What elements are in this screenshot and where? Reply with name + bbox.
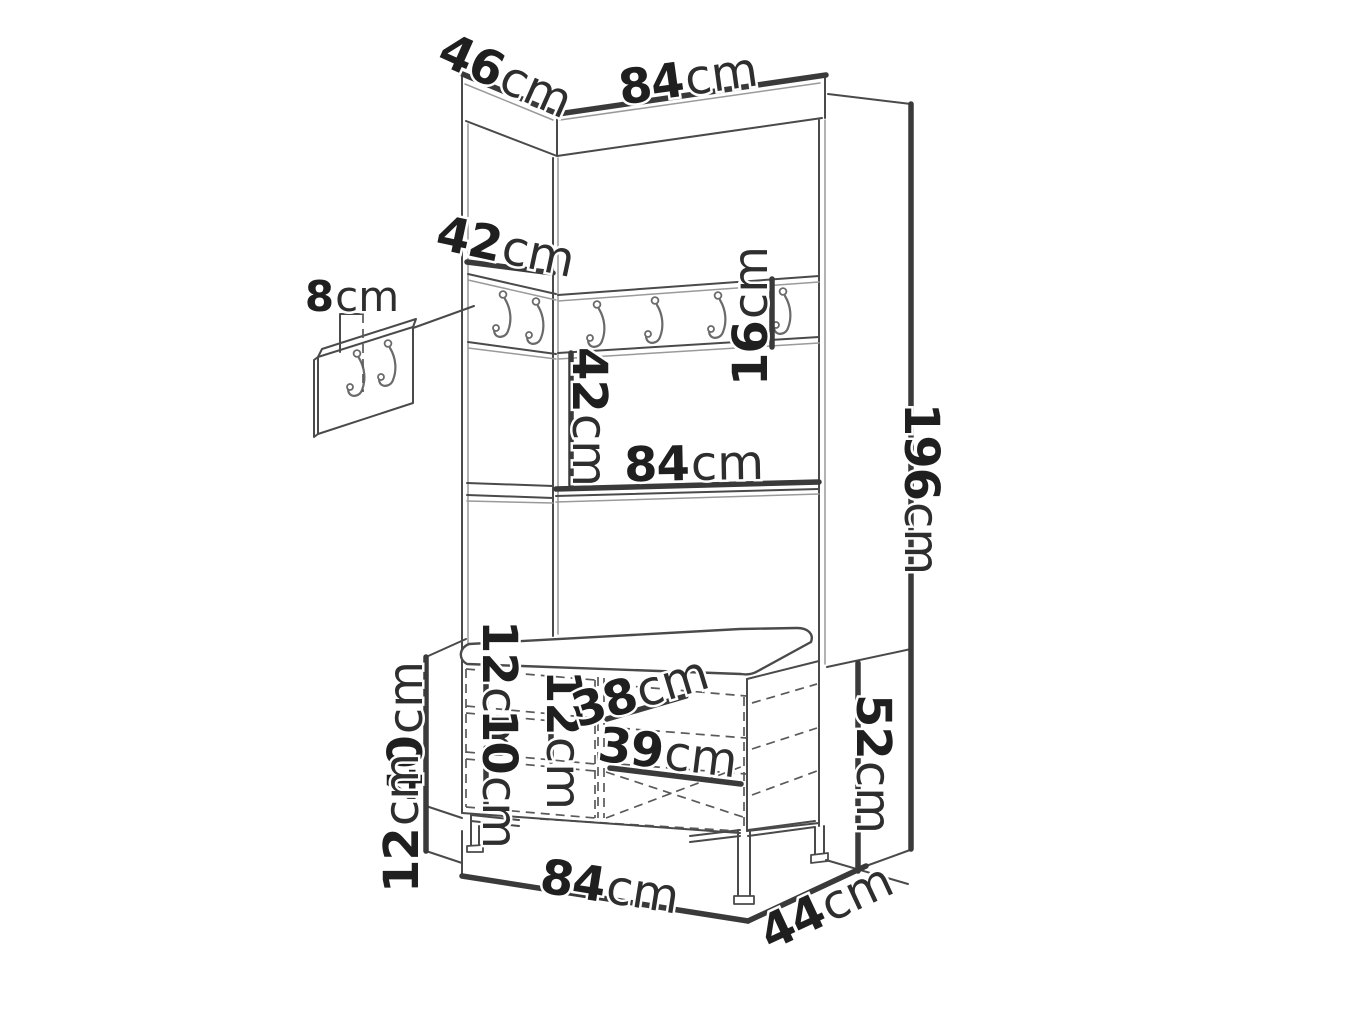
label-bench-low-gap: 10cm <box>471 709 527 849</box>
detail-hook-panel <box>314 306 474 437</box>
furniture-dimension-diagram: 46cm 84cm 42cm 16cm 8cm 42cm 84cm 196cm … <box>0 0 1357 1018</box>
coat-hook-icon <box>493 291 510 337</box>
coat-hook-icon <box>526 298 543 344</box>
label-top-width: 84cm <box>615 42 761 117</box>
label-rail-height: 16cm <box>723 246 779 386</box>
label-total-height: 196cm <box>893 403 949 575</box>
label-bench-depth-lower: 39cm <box>595 717 741 790</box>
diagram-canvas: 46cm 84cm 42cm 16cm 8cm 42cm 84cm 196cm … <box>0 0 1357 1018</box>
label-rail-to-shelf: 42cm <box>561 347 617 487</box>
detail-leader-line <box>413 306 474 328</box>
label-hook-spacing: 8cm <box>305 272 399 321</box>
dimension-labels: 46cm 84cm 42cm 16cm 8cm 42cm 84cm 196cm … <box>305 22 949 962</box>
label-bench-depth: 44cm <box>751 852 902 962</box>
coat-hook-icon <box>587 301 604 347</box>
label-top-depth: 46cm <box>430 22 581 130</box>
label-bench-leg-height: 12cm <box>374 753 430 893</box>
label-bench-width: 84cm <box>536 848 683 925</box>
label-shelf-width: 84cm <box>624 435 765 493</box>
coat-hook-icon <box>645 297 662 343</box>
label-bench-total-height: 52cm <box>845 694 901 834</box>
